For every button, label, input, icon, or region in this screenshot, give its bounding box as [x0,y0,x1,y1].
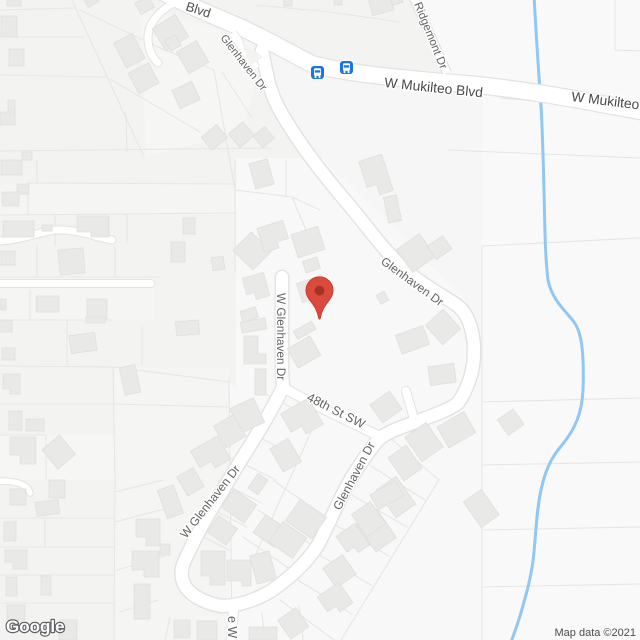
svg-text:Google: Google [6,617,65,636]
svg-text:W Glenhaven Dr: W Glenhaven Dr [274,293,288,380]
svg-text:Map data ©2021: Map data ©2021 [555,627,637,639]
svg-text:e W: e W [225,616,239,638]
